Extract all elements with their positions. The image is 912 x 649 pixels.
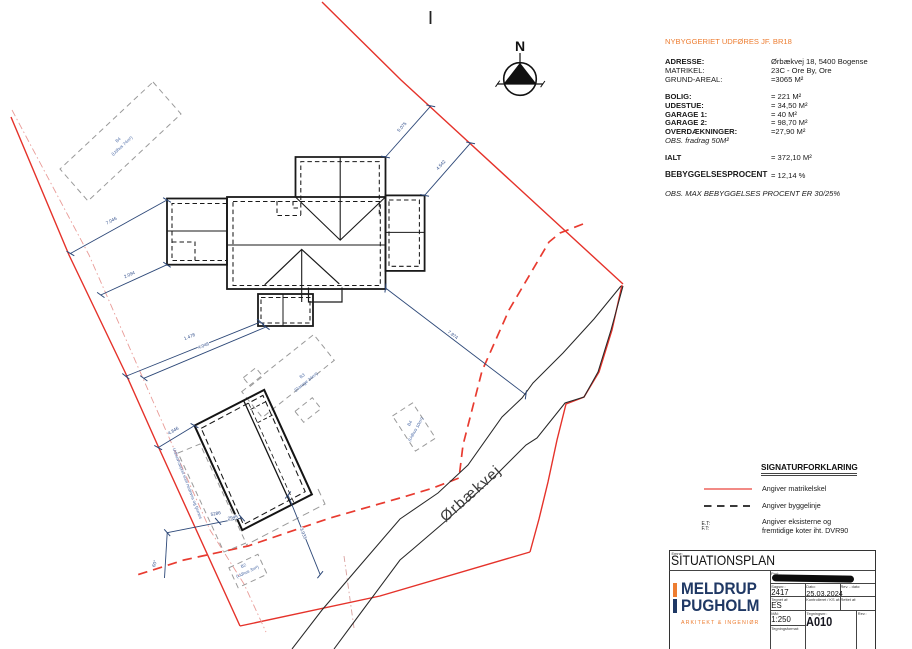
svg-text:60°: 60° bbox=[151, 559, 158, 567]
svg-text:4.046: 4.046 bbox=[197, 341, 210, 350]
svg-text:Ørbækvej: Ørbækvej bbox=[437, 462, 505, 526]
svg-text:B2: B2 bbox=[240, 562, 247, 569]
svg-text:7.046: 7.046 bbox=[105, 216, 118, 226]
svg-text:5286: 5286 bbox=[210, 510, 221, 517]
svg-text:4.542: 4.542 bbox=[435, 159, 447, 171]
svg-text:(Garage 34m²): (Garage 34m²) bbox=[293, 371, 319, 393]
svg-text:(Udhus 3m²): (Udhus 3m²) bbox=[235, 564, 260, 579]
svg-text:4.846: 4.846 bbox=[167, 425, 180, 435]
svg-text:1.478: 1.478 bbox=[183, 332, 196, 341]
svg-text:3.931: 3.931 bbox=[299, 527, 308, 540]
svg-text:B4: B4 bbox=[406, 419, 413, 427]
svg-text:5.075: 5.075 bbox=[396, 121, 408, 133]
svg-text:(Udhus 74m²): (Udhus 74m²) bbox=[110, 135, 134, 157]
svg-text:(Udhus 10m²): (Udhus 10m²) bbox=[407, 416, 425, 442]
svg-text:2.094: 2.094 bbox=[123, 270, 136, 279]
svg-text:N: N bbox=[515, 38, 525, 54]
